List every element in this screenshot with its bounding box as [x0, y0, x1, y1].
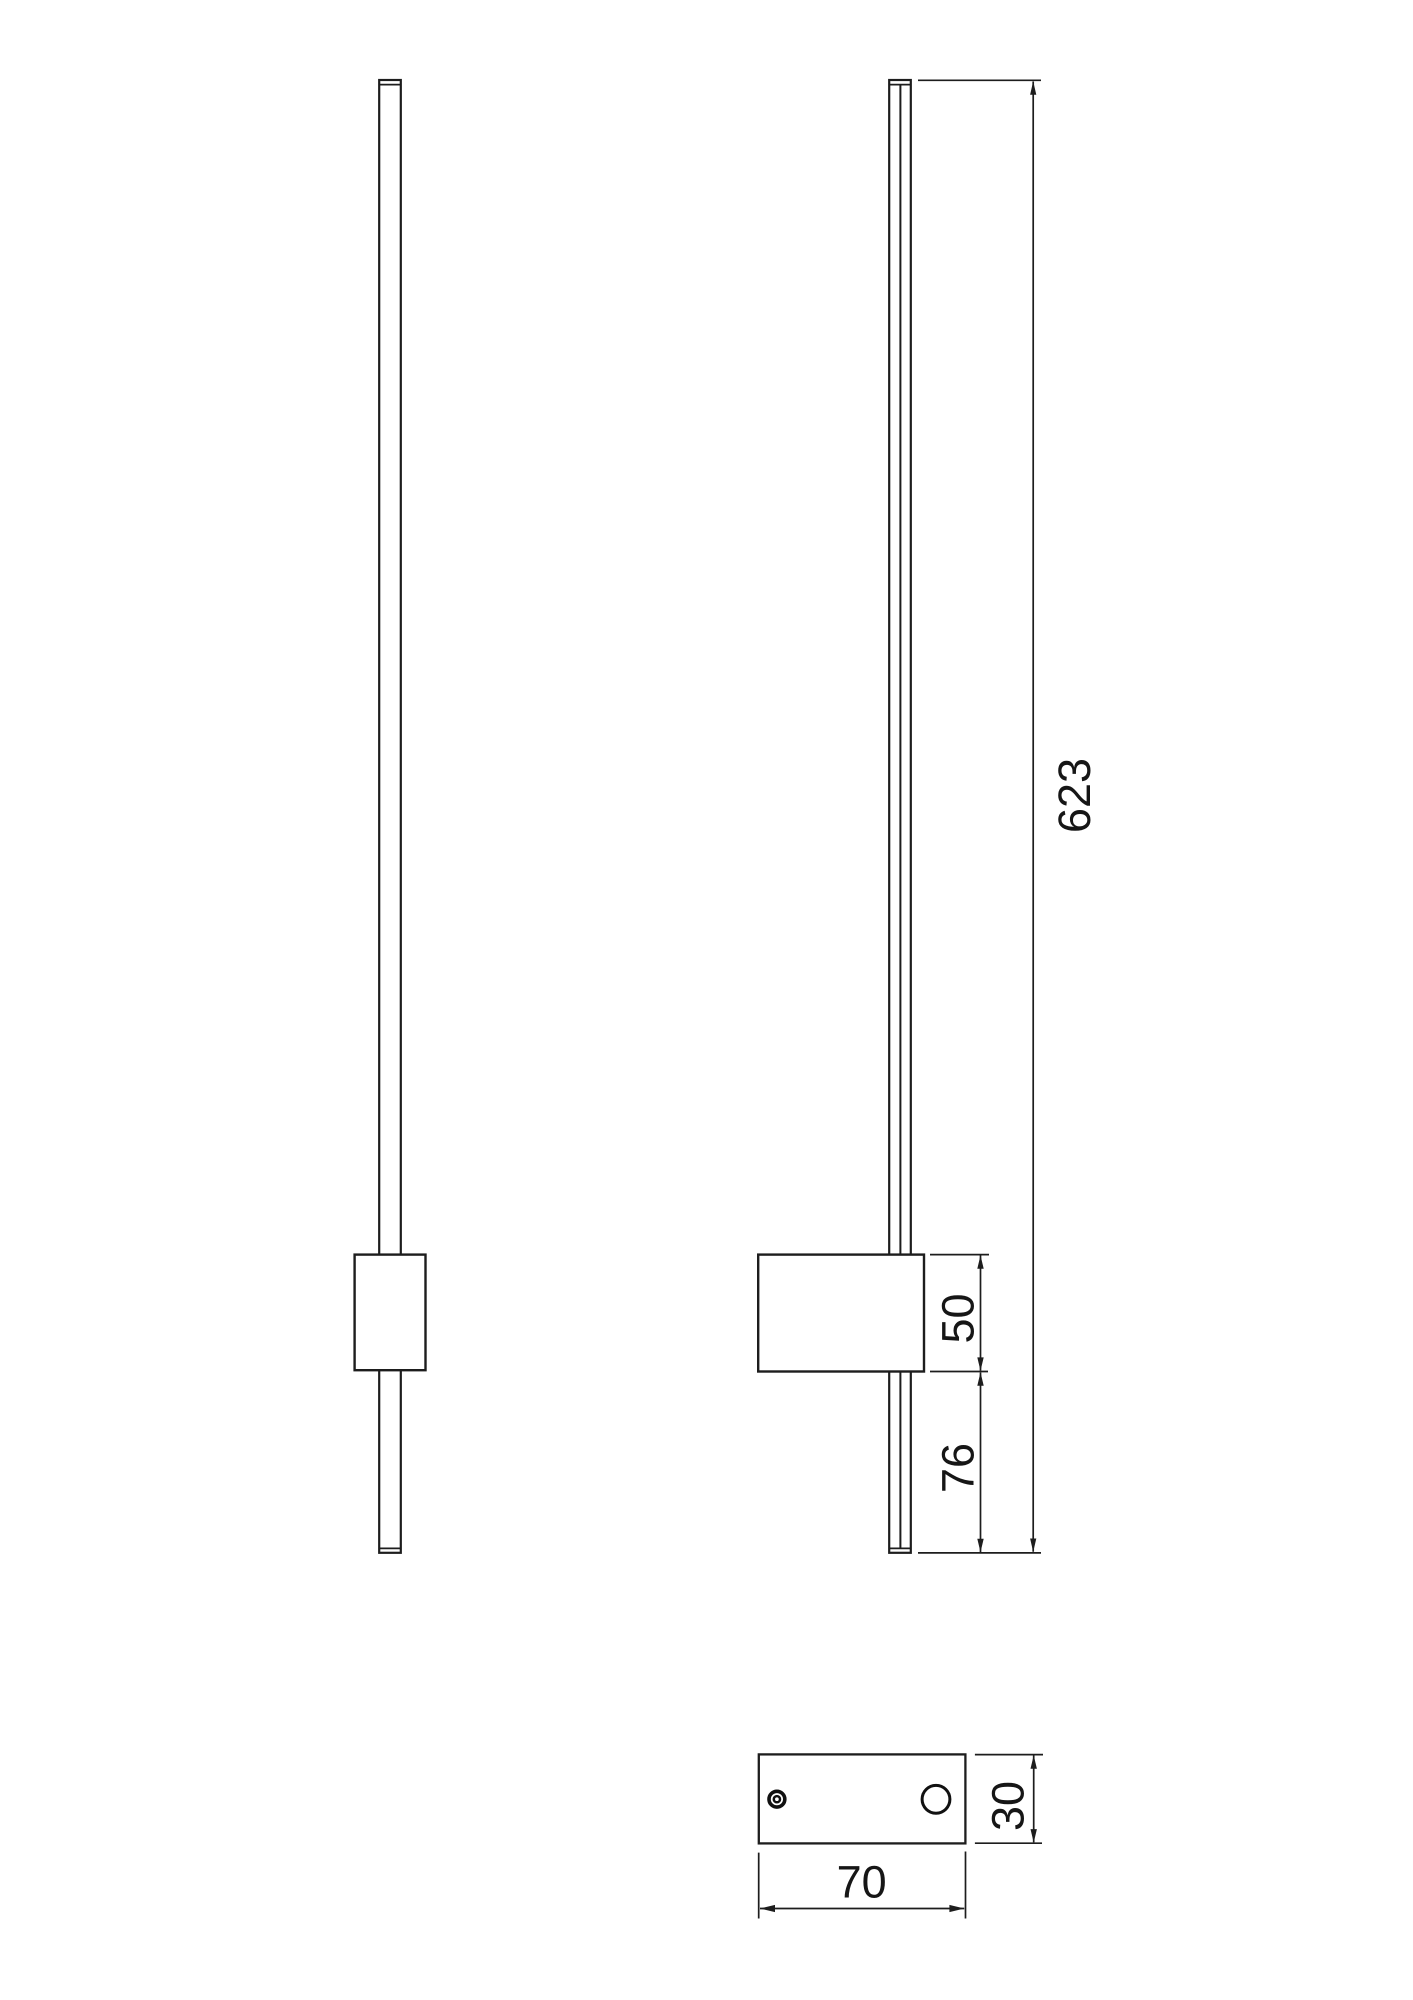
- svg-text:76: 76: [933, 1443, 984, 1493]
- svg-text:50: 50: [932, 1293, 983, 1343]
- svg-text:30: 30: [983, 1781, 1034, 1831]
- svg-text:623: 623: [1049, 758, 1100, 833]
- svg-text:70: 70: [837, 1857, 887, 1908]
